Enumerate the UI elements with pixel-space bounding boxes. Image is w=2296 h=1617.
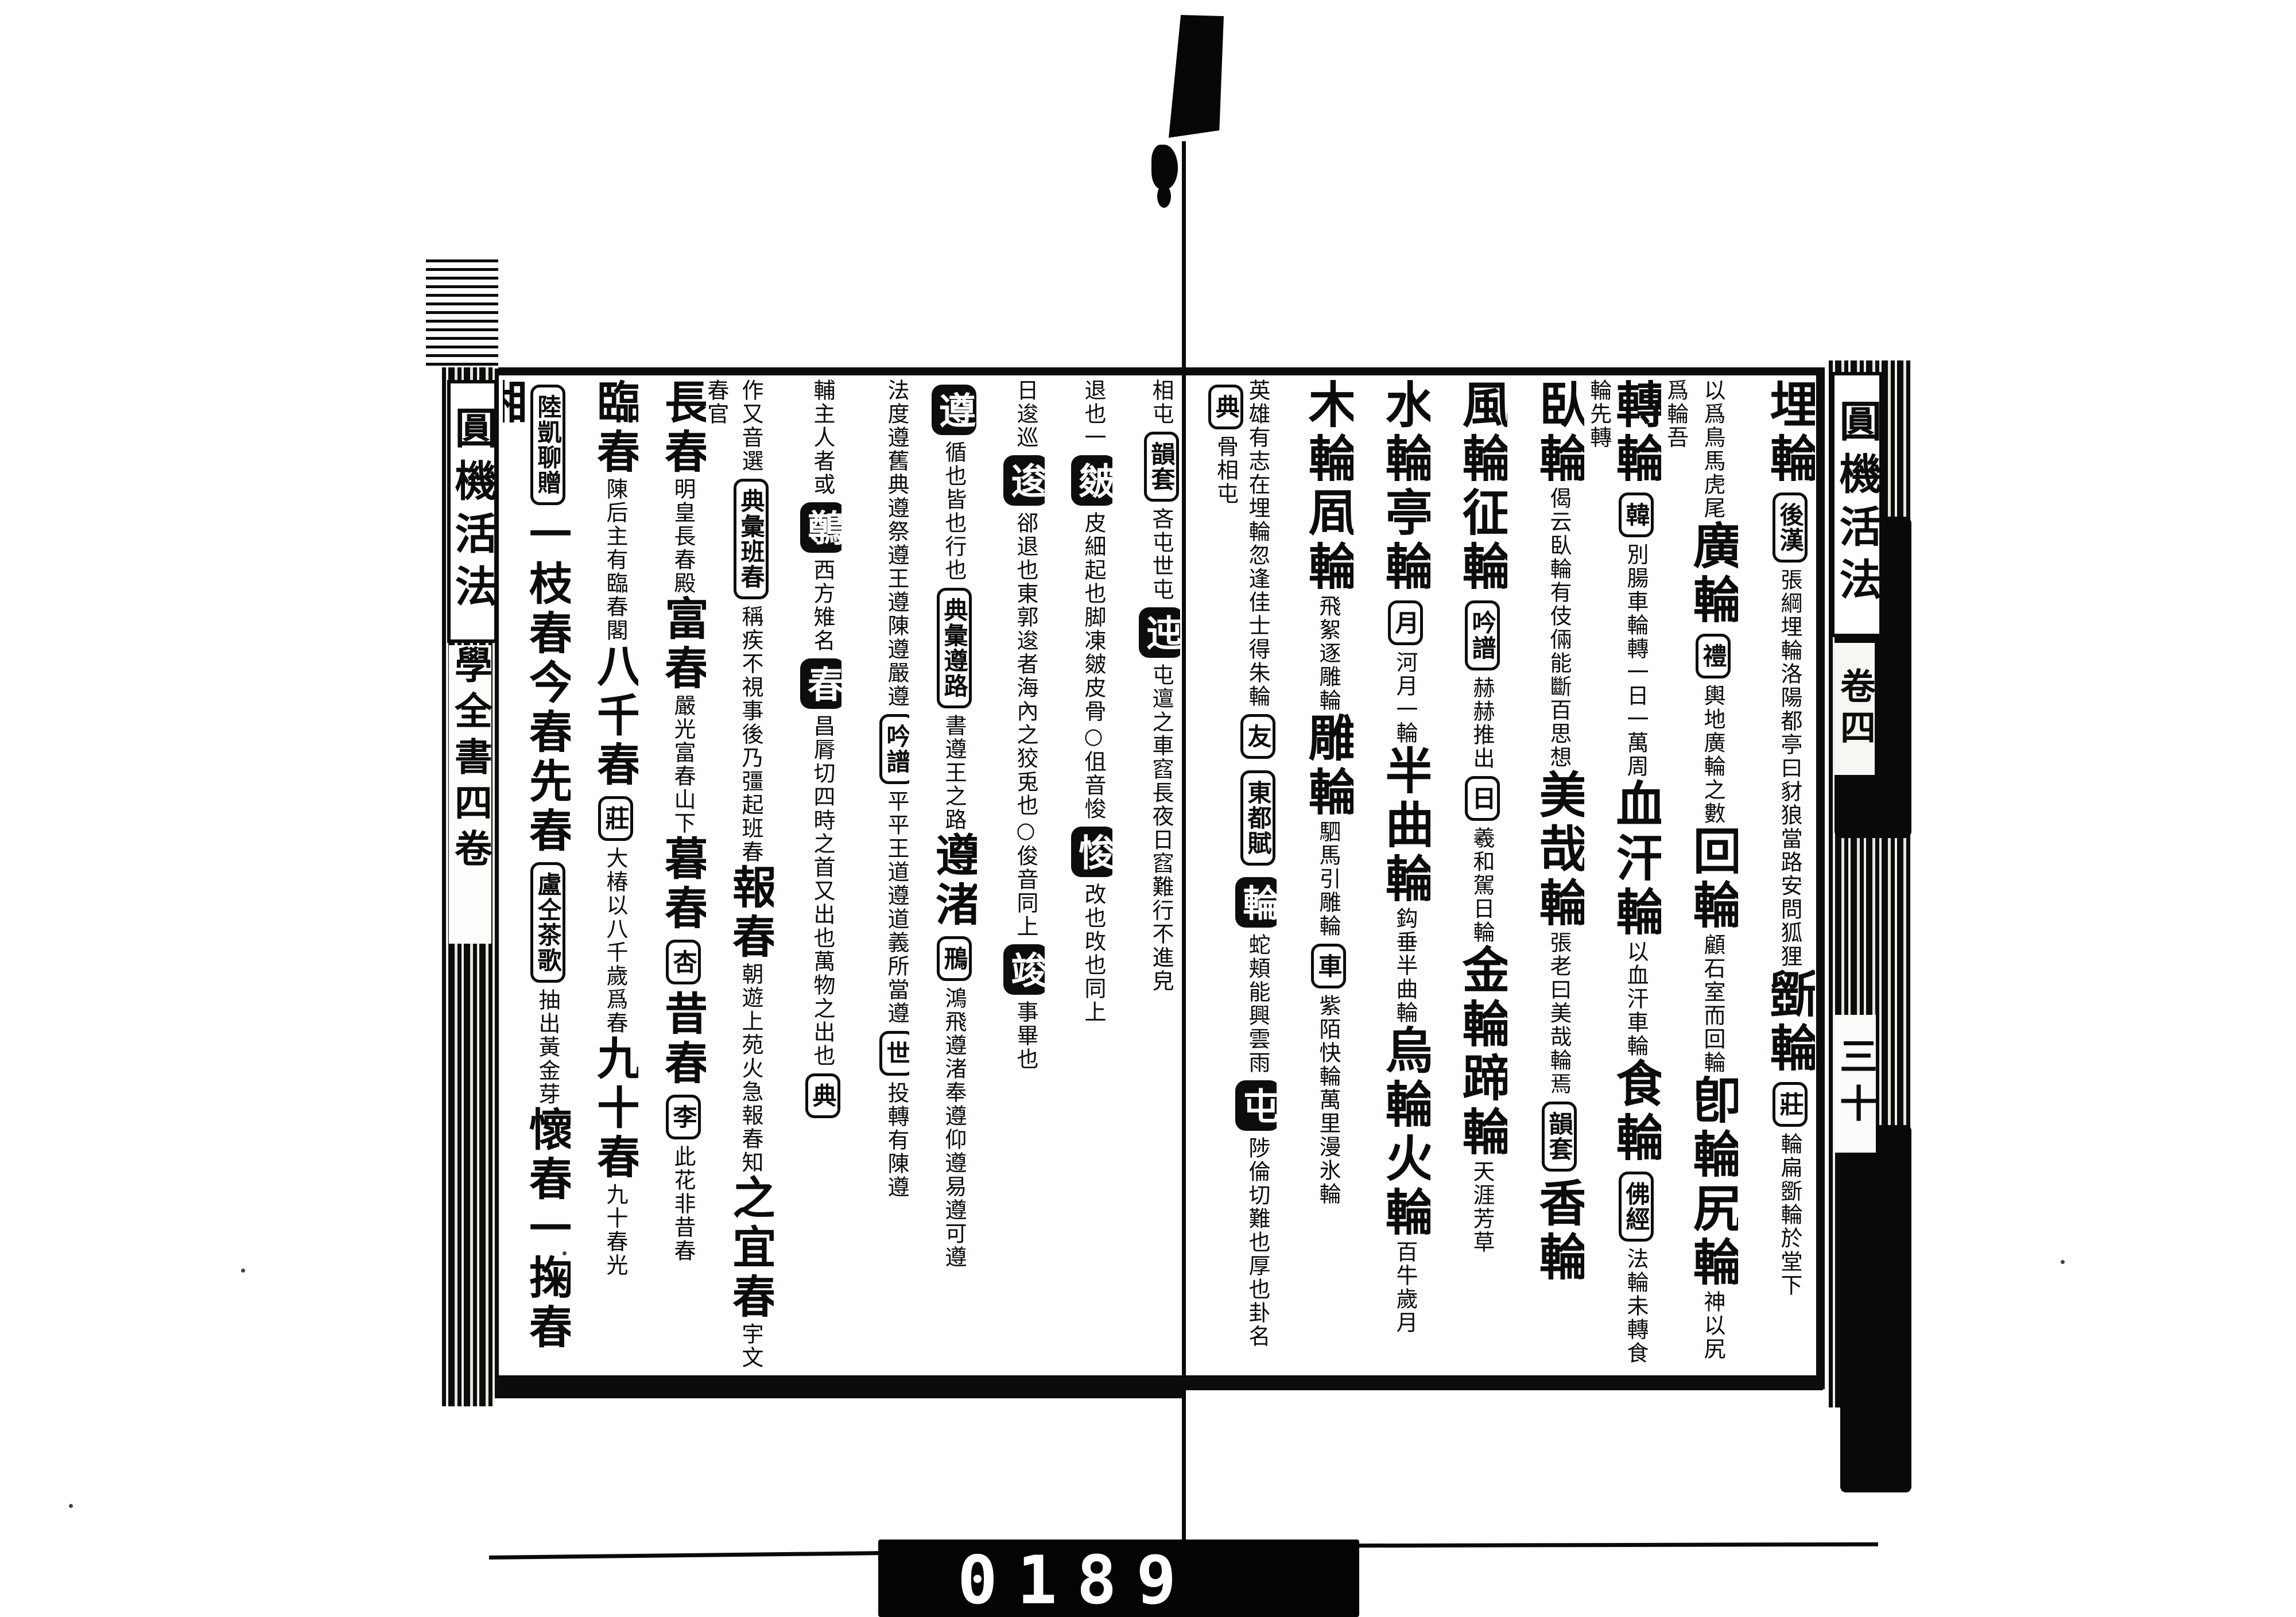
source-tag: 莊	[1773, 1082, 1808, 1127]
source-tag: 吟譜	[879, 714, 909, 784]
headword: 報春	[725, 864, 774, 963]
annotation: 循也皆也行也	[941, 441, 967, 582]
headword: 先春	[522, 758, 571, 856]
source-tag: 友	[1240, 714, 1275, 759]
film-baseline	[1358, 1542, 1878, 1548]
volume-number: 卷四	[1837, 668, 1872, 750]
annotation: 赫赫推出	[1469, 676, 1495, 770]
text-column: 陸凱聊贈一枝春今春先春盧仝茶歌抽出黃金芽懷春一掬春湘	[503, 379, 571, 1373]
headword: 九十春	[589, 1035, 638, 1183]
dust-speck	[69, 1504, 73, 1508]
headword: 凮輪	[1300, 487, 1353, 595]
microfilm-scan: 圓機活法 學全書四卷 圓機活法 卷四 三十 埋輪後漢張綱埋輪洛陽都亭曰豺狼當路安…	[0, 0, 2296, 1617]
annotation: 稱疾不視事後乃彊起班春	[738, 605, 763, 864]
spine-subtitle-box: 學全書四卷	[449, 645, 491, 944]
annotation: 脚凍皴皮骨	[1081, 606, 1106, 723]
headword: 回輪	[1684, 825, 1738, 933]
annotation: 此花非昔春	[670, 1145, 696, 1263]
right-page-border	[1816, 367, 1825, 1389]
text-column: 長春明皇長春殿富春嚴光富春山下暮春杏昔春李此花非昔春	[638, 379, 706, 1373]
source-tag: 佛經	[1619, 1172, 1654, 1242]
spine-subtitle: 學全書四卷	[451, 645, 489, 875]
annotation: 嚴光富春山下	[670, 694, 696, 835]
annotation: ○俊音同上	[1013, 817, 1038, 939]
text-column: 法度遵舊典遵祭遵王遵陳遵嚴遵吟譜平平王道遵道義所當遵世投轉有陳遵	[841, 379, 909, 1373]
annotation: 偈云臥輪有伎倆能斷百思想	[1546, 487, 1572, 769]
section-tag: 逡	[1003, 455, 1045, 506]
annotation: 英雄有志在埋輪	[1245, 379, 1270, 544]
headword: 暮春	[657, 835, 706, 934]
annotation: 以爲鳥馬虎尾	[1700, 379, 1725, 520]
text-column: 英雄有志在埋輪忽逢佳士得朱輪友東都賦輪蛇頬能興雲雨屯陟倫切難也厚也卦名典骨相屯	[1200, 379, 1277, 1373]
annotation: 退也一	[1081, 379, 1106, 449]
annotation: 骨相屯	[1213, 435, 1238, 506]
headword: 尻輪	[1684, 1182, 1738, 1290]
annotation: 抽出黃金芽	[535, 988, 560, 1106]
film-baseline	[489, 1551, 882, 1560]
annotation: 鴻飛遵渚	[941, 987, 967, 1081]
text-column: 輔主人者或鷷西方雉名春昌脣切四時之首又出也萬物之出也典	[774, 379, 841, 1373]
annotation: 作又音選	[738, 379, 763, 473]
annotation: 輪扁斵輪於堂下	[1777, 1133, 1802, 1297]
annotation: 天涯芳草	[1469, 1160, 1495, 1254]
headword: 水輪	[1376, 379, 1430, 487]
dust-speck	[2061, 1260, 2065, 1264]
text-column: 風輪征輪吟譜赫赫推出日羲和駕日輪金輪蹄輪天涯芳草	[1430, 379, 1507, 1373]
source-tag: 韻套	[1144, 432, 1179, 502]
headword: 臥輪	[1530, 379, 1584, 487]
annotation: 顧石室而回輪	[1700, 933, 1725, 1075]
annotation: 駟馬引雕輪	[1316, 820, 1341, 938]
headword: 長春	[657, 379, 706, 478]
section-tag: 屯	[1235, 1080, 1277, 1131]
text-column: 轉輪韓別腸車輪轉一日一萬周血汗輪以血汗車輪食輪佛經法輪未轉食輪先轉	[1584, 379, 1661, 1373]
annotation: 西方雉名	[810, 559, 835, 653]
headword: 轉輪	[1607, 379, 1661, 487]
annotation: 河月一輪	[1393, 651, 1418, 745]
headword: 卽輪	[1684, 1075, 1738, 1182]
annotation: 鈎垂半曲輪	[1393, 907, 1418, 1025]
headword: 金輪	[1453, 944, 1507, 1052]
headword: 香輪	[1530, 1177, 1584, 1285]
section-tag: 鷷	[800, 502, 841, 553]
annotation: 羲和駕日輪	[1469, 827, 1495, 944]
source-tag: 日	[1465, 776, 1500, 821]
source-tag: 車	[1311, 944, 1346, 988]
annotation: 平平王道遵道義所當遵	[884, 790, 909, 1025]
frame-counter: 0189	[878, 1540, 1359, 1617]
annotation: 明皇長春殿	[670, 478, 696, 595]
text-column: 日逡巡逡郤退也東郭逡者海內之狡兎也○俊音同上竣事畢也	[977, 379, 1045, 1373]
annotation: 書遵王之路	[941, 714, 967, 832]
annotation: 祭遵王遵陳遵嚴遵	[884, 520, 909, 708]
headword: 雕輪	[1300, 712, 1353, 820]
text-column: 作又音選典彙班春稱疾不視事後乃彊起班春報春朝遊上苑火急報春知之宜春宇文春官	[706, 379, 774, 1373]
source-tag: 東都賦	[1240, 770, 1275, 866]
text-column: 木輪凮輪飛絮逐雕輪雕輪駟馬引雕輪車紫陌快輪萬里漫氷輪	[1277, 379, 1353, 1373]
section-tag: 春	[800, 658, 841, 709]
headword: 臨春	[589, 379, 638, 478]
annotation: 事畢也	[1013, 1001, 1038, 1071]
source-tag: 典彙班春	[734, 479, 769, 599]
source-tag: 陸凱聊贈	[530, 385, 565, 505]
annotation: 大椿以八千歲爲春	[603, 847, 628, 1035]
headword: 蹄輪	[1453, 1052, 1507, 1160]
annotation: 紫陌快輪萬里漫氷輪	[1316, 994, 1341, 1206]
annotation: 以血汗車輪	[1623, 940, 1649, 1058]
source-tag: 李	[666, 1095, 701, 1139]
headword: 亭輪	[1376, 487, 1430, 595]
film-streaks	[426, 259, 498, 369]
headword: 昔春	[657, 990, 706, 1089]
headword: 之宜春	[725, 1174, 774, 1323]
annotation: 輔主人者或	[810, 379, 835, 497]
ink-blob	[1157, 185, 1171, 208]
volume-label: 卷四	[1835, 643, 1875, 775]
headword: 美哉輪	[1530, 769, 1584, 931]
book-fold-line	[1182, 141, 1186, 1548]
source-tag: 典	[805, 1073, 840, 1118]
right-page-text-block: 埋輪後漢張綱埋輪洛陽都亭曰豺狼當路安問狐狸斵輪莊輪扁斵輪於堂下以爲鳥馬虎尾廣輪禮…	[1197, 379, 1815, 1373]
page-bottom-rule-left	[494, 1389, 1182, 1398]
annotation: 百牛歲月	[1393, 1240, 1418, 1335]
annotation: 相屯	[1149, 379, 1174, 426]
source-tag: 月	[1388, 600, 1423, 645]
section-tag: 竣	[1003, 944, 1045, 995]
annotation: 昌脣切四時之首又出也萬物之出也	[810, 715, 835, 1068]
annotation: 難行不進皃	[1149, 875, 1174, 993]
source-tag: 莊	[598, 796, 633, 841]
spine-title: 圓機活法	[451, 406, 494, 617]
headword: 血汗輪	[1607, 778, 1661, 940]
annotation: 忽逢佳士得朱輪	[1245, 544, 1270, 708]
headword: 遵渚	[928, 832, 977, 930]
source-tag: 吟譜	[1465, 600, 1500, 670]
spine-title-box: 圓機活法	[1831, 372, 1883, 637]
section-tag: 遵	[932, 385, 976, 435]
source-tag: 盧仝茶歌	[530, 862, 565, 983]
annotation: 輿地廣輪之數	[1700, 684, 1725, 825]
headword: 火輪	[1376, 1133, 1430, 1240]
annotation: 奉遵仰遵易遵可遵	[941, 1081, 967, 1269]
annotation: 吝屯世屯	[1149, 507, 1174, 602]
headword: 埋輪	[1761, 379, 1815, 487]
frame-counter-digits: 0189	[957, 1542, 1196, 1617]
annotation: 張老曰美哉輪焉	[1546, 931, 1572, 1096]
text-column: 退也一皴皮細起也脚凍皴皮骨○伹音悛悛改也攺也同上	[1045, 379, 1112, 1373]
text-column: 遵循也皆也行也典彙遵路書遵王之路遵渚鳽鴻飛遵渚奉遵仰遵易遵可遵	[909, 379, 977, 1373]
headword: 一枝春	[522, 511, 571, 659]
source-tag: 韻套	[1542, 1102, 1577, 1172]
left-page-text-block: 相屯韻套吝屯世屯迍屯邅之車窞長夜日窞難行不進皃退也一皴皮細起也脚凍皴皮骨○伹音悛…	[501, 379, 1180, 1373]
headword: 征輪	[1453, 487, 1507, 595]
annotation: ○伹音悛	[1081, 723, 1106, 821]
source-tag: 後漢	[1773, 493, 1808, 563]
section-tag: 皴	[1071, 455, 1112, 506]
spine-title: 圓機活法	[1836, 399, 1878, 610]
annotation: 日逡巡	[1013, 379, 1038, 449]
section-tag: 悛	[1071, 827, 1112, 877]
text-column: 以爲鳥馬虎尾廣輪禮輿地廣輪之數回輪顧石室而回輪卽輪尻輪神以尻爲輪吾	[1661, 379, 1738, 1373]
annotation: 九十春光	[603, 1183, 628, 1277]
annotation: 屯邅之車	[1149, 664, 1174, 758]
annotation: 飛絮逐雕輪	[1316, 595, 1341, 712]
annotation: 郤退也	[1013, 511, 1038, 582]
spine-title-box: 圓機活法	[447, 380, 498, 643]
headword: 富春	[657, 595, 706, 694]
source-tag: 韓	[1619, 493, 1654, 537]
page-bottom-rule	[494, 1375, 1823, 1390]
headword: 懷春	[522, 1106, 571, 1205]
text-column: 臨春陳后主有臨春閣八千春莊大椿以八千歲爲春九十春九十春光	[571, 379, 638, 1373]
section-tag: 輪	[1235, 877, 1277, 928]
annotation: 改也攺也同上	[1081, 883, 1106, 1024]
text-column: 水輪亭輪月河月一輪半曲輪鈎垂半曲輪烏輪火輪百牛歲月	[1353, 379, 1430, 1373]
annotation: 法度遵舊典遵	[884, 379, 909, 520]
ink-blob	[1151, 145, 1178, 189]
source-tag: 典彙遵路	[937, 588, 972, 708]
dust-speck	[241, 1269, 245, 1273]
text-column: 臥輪偈云臥輪有伎倆能斷百思想美哉輪張老曰美哉輪焉韻套香輪	[1507, 379, 1584, 1373]
text-column: 相屯韻套吝屯世屯迍屯邅之車窞長夜日窞難行不進皃	[1112, 379, 1180, 1373]
annotation: 陟倫切難也厚也卦名	[1245, 1137, 1270, 1348]
annotation: 別腸車輪轉一日一萬周	[1623, 543, 1649, 778]
annotation: 窞長夜日窞	[1149, 758, 1174, 875]
headword: 廣輪	[1684, 520, 1738, 628]
source-tag: 世	[879, 1031, 909, 1076]
folio-number-box: 三十	[1835, 1015, 1876, 1153]
section-tag: 迍	[1139, 607, 1180, 658]
headword: 湘	[503, 379, 527, 428]
annotation: 陳后主有臨春閣	[603, 478, 628, 642]
annotation: 張綱埋輪洛陽都亭曰豺狼當路安問狐狸	[1777, 568, 1802, 968]
page-top-rule	[497, 367, 1824, 375]
headword: 八千春	[589, 642, 638, 790]
source-tag: 鳽	[937, 936, 972, 981]
headword: 風輪	[1453, 379, 1507, 487]
annotation: 投轉有陳遵	[884, 1081, 909, 1199]
gutter-ink-band	[1840, 1125, 1911, 1492]
annotation: 皮細起也	[1081, 511, 1106, 606]
headword: 食輪	[1607, 1058, 1661, 1166]
annotation: 蛇頬能興雲雨	[1245, 933, 1270, 1075]
headword: 一掬春	[522, 1205, 571, 1353]
text-column: 埋輪後漢張綱埋輪洛陽都亭曰豺狼當路安問狐狸斵輪莊輪扁斵輪於堂下	[1738, 379, 1815, 1373]
source-tag: 杏	[666, 940, 701, 984]
headword: 今春	[522, 659, 571, 758]
folio-number: 三十	[1836, 1037, 1874, 1131]
annotation: 朝遊上苑火急報春知	[738, 963, 763, 1174]
annotation: 東郭逡者海內之狡兎也	[1013, 582, 1038, 817]
headword: 木輪	[1300, 379, 1353, 487]
headword: 烏輪	[1376, 1025, 1430, 1133]
film-frame-marker	[1169, 15, 1224, 138]
source-tag: 典	[1208, 385, 1243, 429]
headword: 斵輪	[1761, 968, 1815, 1076]
headword: 半曲輪	[1376, 745, 1430, 907]
source-tag: 禮	[1696, 634, 1731, 678]
